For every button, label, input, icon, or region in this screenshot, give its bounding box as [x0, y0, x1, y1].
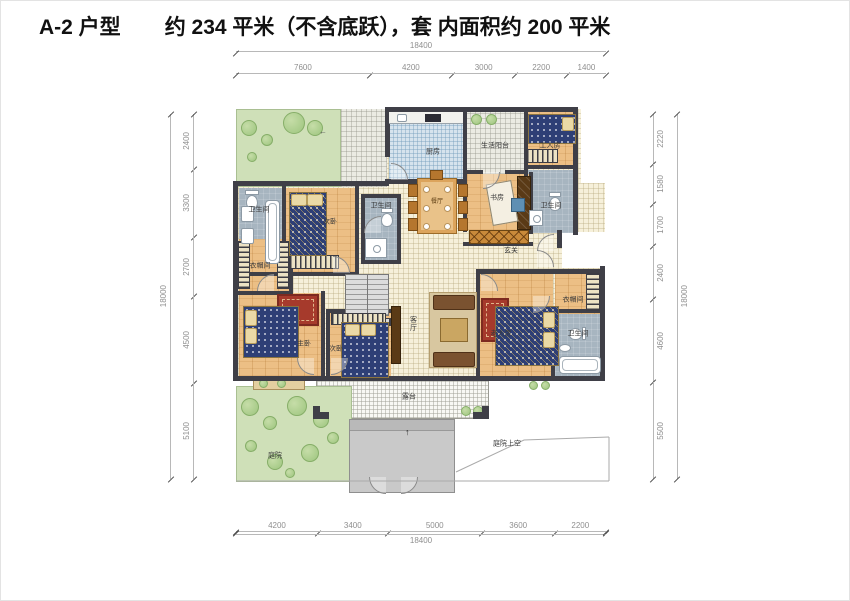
room-label-study: 书房 — [490, 195, 504, 202]
chair — [408, 201, 418, 214]
room-label-bedroom-bottom: 次卧 — [329, 346, 343, 353]
pillow — [361, 324, 376, 336]
room-label-closet-left: 衣帽间 — [250, 263, 271, 270]
wall — [355, 186, 359, 274]
chair — [458, 218, 468, 231]
dim-bottom-total: 18400 — [236, 534, 606, 550]
pillow — [307, 194, 323, 206]
entry-porch — [562, 232, 611, 268]
tree-icon — [283, 112, 305, 134]
sink — [241, 228, 254, 244]
dim-value: 7600 — [236, 59, 370, 74]
wardrobe — [238, 241, 250, 289]
chair — [458, 184, 468, 197]
room-label-terrace: 露台 — [402, 394, 416, 401]
room-label-dining: 餐厅 — [431, 199, 443, 205]
dim-value: 2200 — [555, 517, 606, 532]
dim-left-segments: 2400 3300 2700 4500 5100 — [180, 114, 194, 479]
dim-value: 2700 — [180, 237, 194, 296]
dim-value: 3300 — [180, 169, 194, 237]
plant-icon — [461, 406, 471, 416]
path-arrow-icon: ← — [319, 128, 327, 136]
wall — [505, 170, 524, 174]
plate — [423, 186, 430, 193]
dim-value: 2200 — [515, 59, 566, 74]
wall — [361, 194, 401, 198]
tree-icon — [287, 396, 307, 416]
chair — [458, 201, 468, 214]
plate — [444, 223, 451, 230]
plant-icon — [486, 114, 497, 125]
tree-icon — [327, 432, 339, 444]
dim-top-total: 18400 — [236, 37, 606, 52]
dim-value: 3000 — [452, 59, 516, 74]
chair — [408, 184, 418, 197]
sofa — [433, 352, 475, 367]
tree-icon — [261, 134, 273, 146]
dim-bottom-segments: 4200 3400 5000 3600 2200 — [236, 517, 606, 532]
room-label-bath-left: 卫生间 — [249, 207, 270, 214]
dim-value: 4500 — [180, 296, 194, 383]
dim-value: 2400 — [653, 246, 667, 298]
wall — [321, 291, 325, 381]
room-label-bath-master: 卫生间 — [568, 331, 589, 338]
dim-value: 18400 — [236, 534, 606, 550]
dim-top-segments: 7600 4200 3000 2200 1400 — [236, 59, 606, 74]
dim-value: 2400 — [180, 114, 194, 169]
room-label-living-room: 客厅 — [410, 316, 417, 332]
tree-icon — [301, 444, 319, 462]
sofa — [433, 295, 475, 310]
wall — [463, 107, 467, 171]
dim-value: 4200 — [236, 517, 318, 532]
dim-value: 1400 — [567, 59, 606, 74]
dim-value: 1580 — [653, 164, 667, 204]
pillow — [245, 310, 257, 326]
dim-value: 4200 — [370, 59, 452, 74]
wall — [397, 194, 401, 264]
room-label-bedroom-top: 次卧 — [323, 219, 337, 226]
wall — [233, 181, 389, 186]
chair — [408, 218, 418, 231]
dim-value: 5100 — [180, 383, 194, 479]
terrace-corner — [482, 406, 489, 419]
room-label-kitchen: 厨房 — [426, 149, 440, 156]
dim-value: 5500 — [653, 382, 667, 479]
dim-value: 18000 — [157, 114, 171, 479]
dim-value: 18400 — [236, 37, 606, 52]
foyer-cabinet — [469, 230, 529, 244]
entry-arrow-icon: ↑ — [405, 428, 410, 437]
floorplan: ← — [233, 106, 611, 506]
wall — [233, 376, 605, 381]
pillow — [291, 194, 307, 206]
room-label-foyer: 玄关 — [504, 248, 518, 255]
terrace-corner — [313, 406, 320, 419]
floorplan-page: A-2 户型约 234 平米（不含底跃），套 内面积约 200 平米 18400… — [0, 0, 850, 601]
chair — [430, 170, 443, 180]
tree-icon — [263, 416, 277, 430]
plant-icon — [529, 381, 538, 390]
room-label-bath-top-right: 卫生间 — [541, 203, 562, 210]
pillow — [543, 332, 555, 348]
plan-area-label: 约 234 平米（不含底跃），套 内面积约 200 平米 — [165, 16, 611, 39]
tree-icon — [285, 468, 295, 478]
wall — [557, 230, 562, 248]
dim-value: 1700 — [653, 204, 667, 246]
tv-cabinet — [391, 306, 401, 364]
pillow — [562, 117, 574, 131]
staircase — [345, 274, 389, 316]
bathtub — [559, 356, 601, 374]
room-label-living-balcony: 生活阳台 — [481, 143, 509, 150]
room-label-maid-room: 工人房 — [540, 143, 561, 150]
plate — [444, 186, 451, 193]
room-label-courtyard: 庭院 — [268, 453, 282, 460]
plant-icon — [471, 114, 482, 125]
dim-value: 4600 — [653, 299, 667, 383]
tree-icon — [241, 398, 259, 416]
room-label-elder-room: 老人房 — [491, 331, 512, 338]
pillow — [245, 328, 257, 344]
pillow — [543, 312, 555, 328]
plan-type-label: A-2 户型 — [39, 16, 121, 39]
desk-chair — [511, 198, 525, 212]
wall — [524, 165, 576, 169]
tree-icon — [247, 152, 257, 162]
plate — [423, 223, 430, 230]
cooktop — [425, 114, 441, 122]
plant-icon — [541, 381, 550, 390]
room-label-bath-middle: 卫生间 — [371, 203, 392, 210]
dim-value: 3400 — [318, 517, 388, 532]
tree-icon — [245, 440, 257, 452]
dim-value: 18000 — [677, 114, 691, 479]
kitchen-sink — [397, 114, 407, 122]
tree-icon — [241, 120, 257, 136]
washer-door — [533, 215, 541, 223]
wardrobe — [526, 149, 558, 163]
wall — [361, 260, 401, 264]
room-label-closet-right: 衣帽间 — [563, 297, 584, 304]
garden-path — [341, 109, 387, 187]
vestibule-step — [350, 420, 454, 431]
wardrobe — [586, 273, 600, 311]
plate — [423, 205, 430, 212]
shower-drain — [373, 245, 381, 253]
dim-left-total: 18000 — [157, 114, 171, 479]
plate — [444, 205, 451, 212]
sink — [559, 344, 571, 352]
room-label-void-above: 庭院上空 — [493, 441, 521, 448]
dim-right-total: 18000 — [677, 114, 691, 479]
dim-value: 3600 — [482, 517, 555, 532]
dim-value: 5000 — [388, 517, 482, 532]
wardrobe — [289, 255, 339, 269]
pillow — [345, 324, 360, 336]
coffee-table — [440, 318, 468, 342]
dim-value: 2220 — [653, 114, 667, 164]
toilet — [381, 213, 393, 227]
dim-right-segments: 2220 1580 1700 2400 4600 5500 — [653, 114, 667, 479]
room-label-master: 主卧 — [297, 341, 311, 348]
